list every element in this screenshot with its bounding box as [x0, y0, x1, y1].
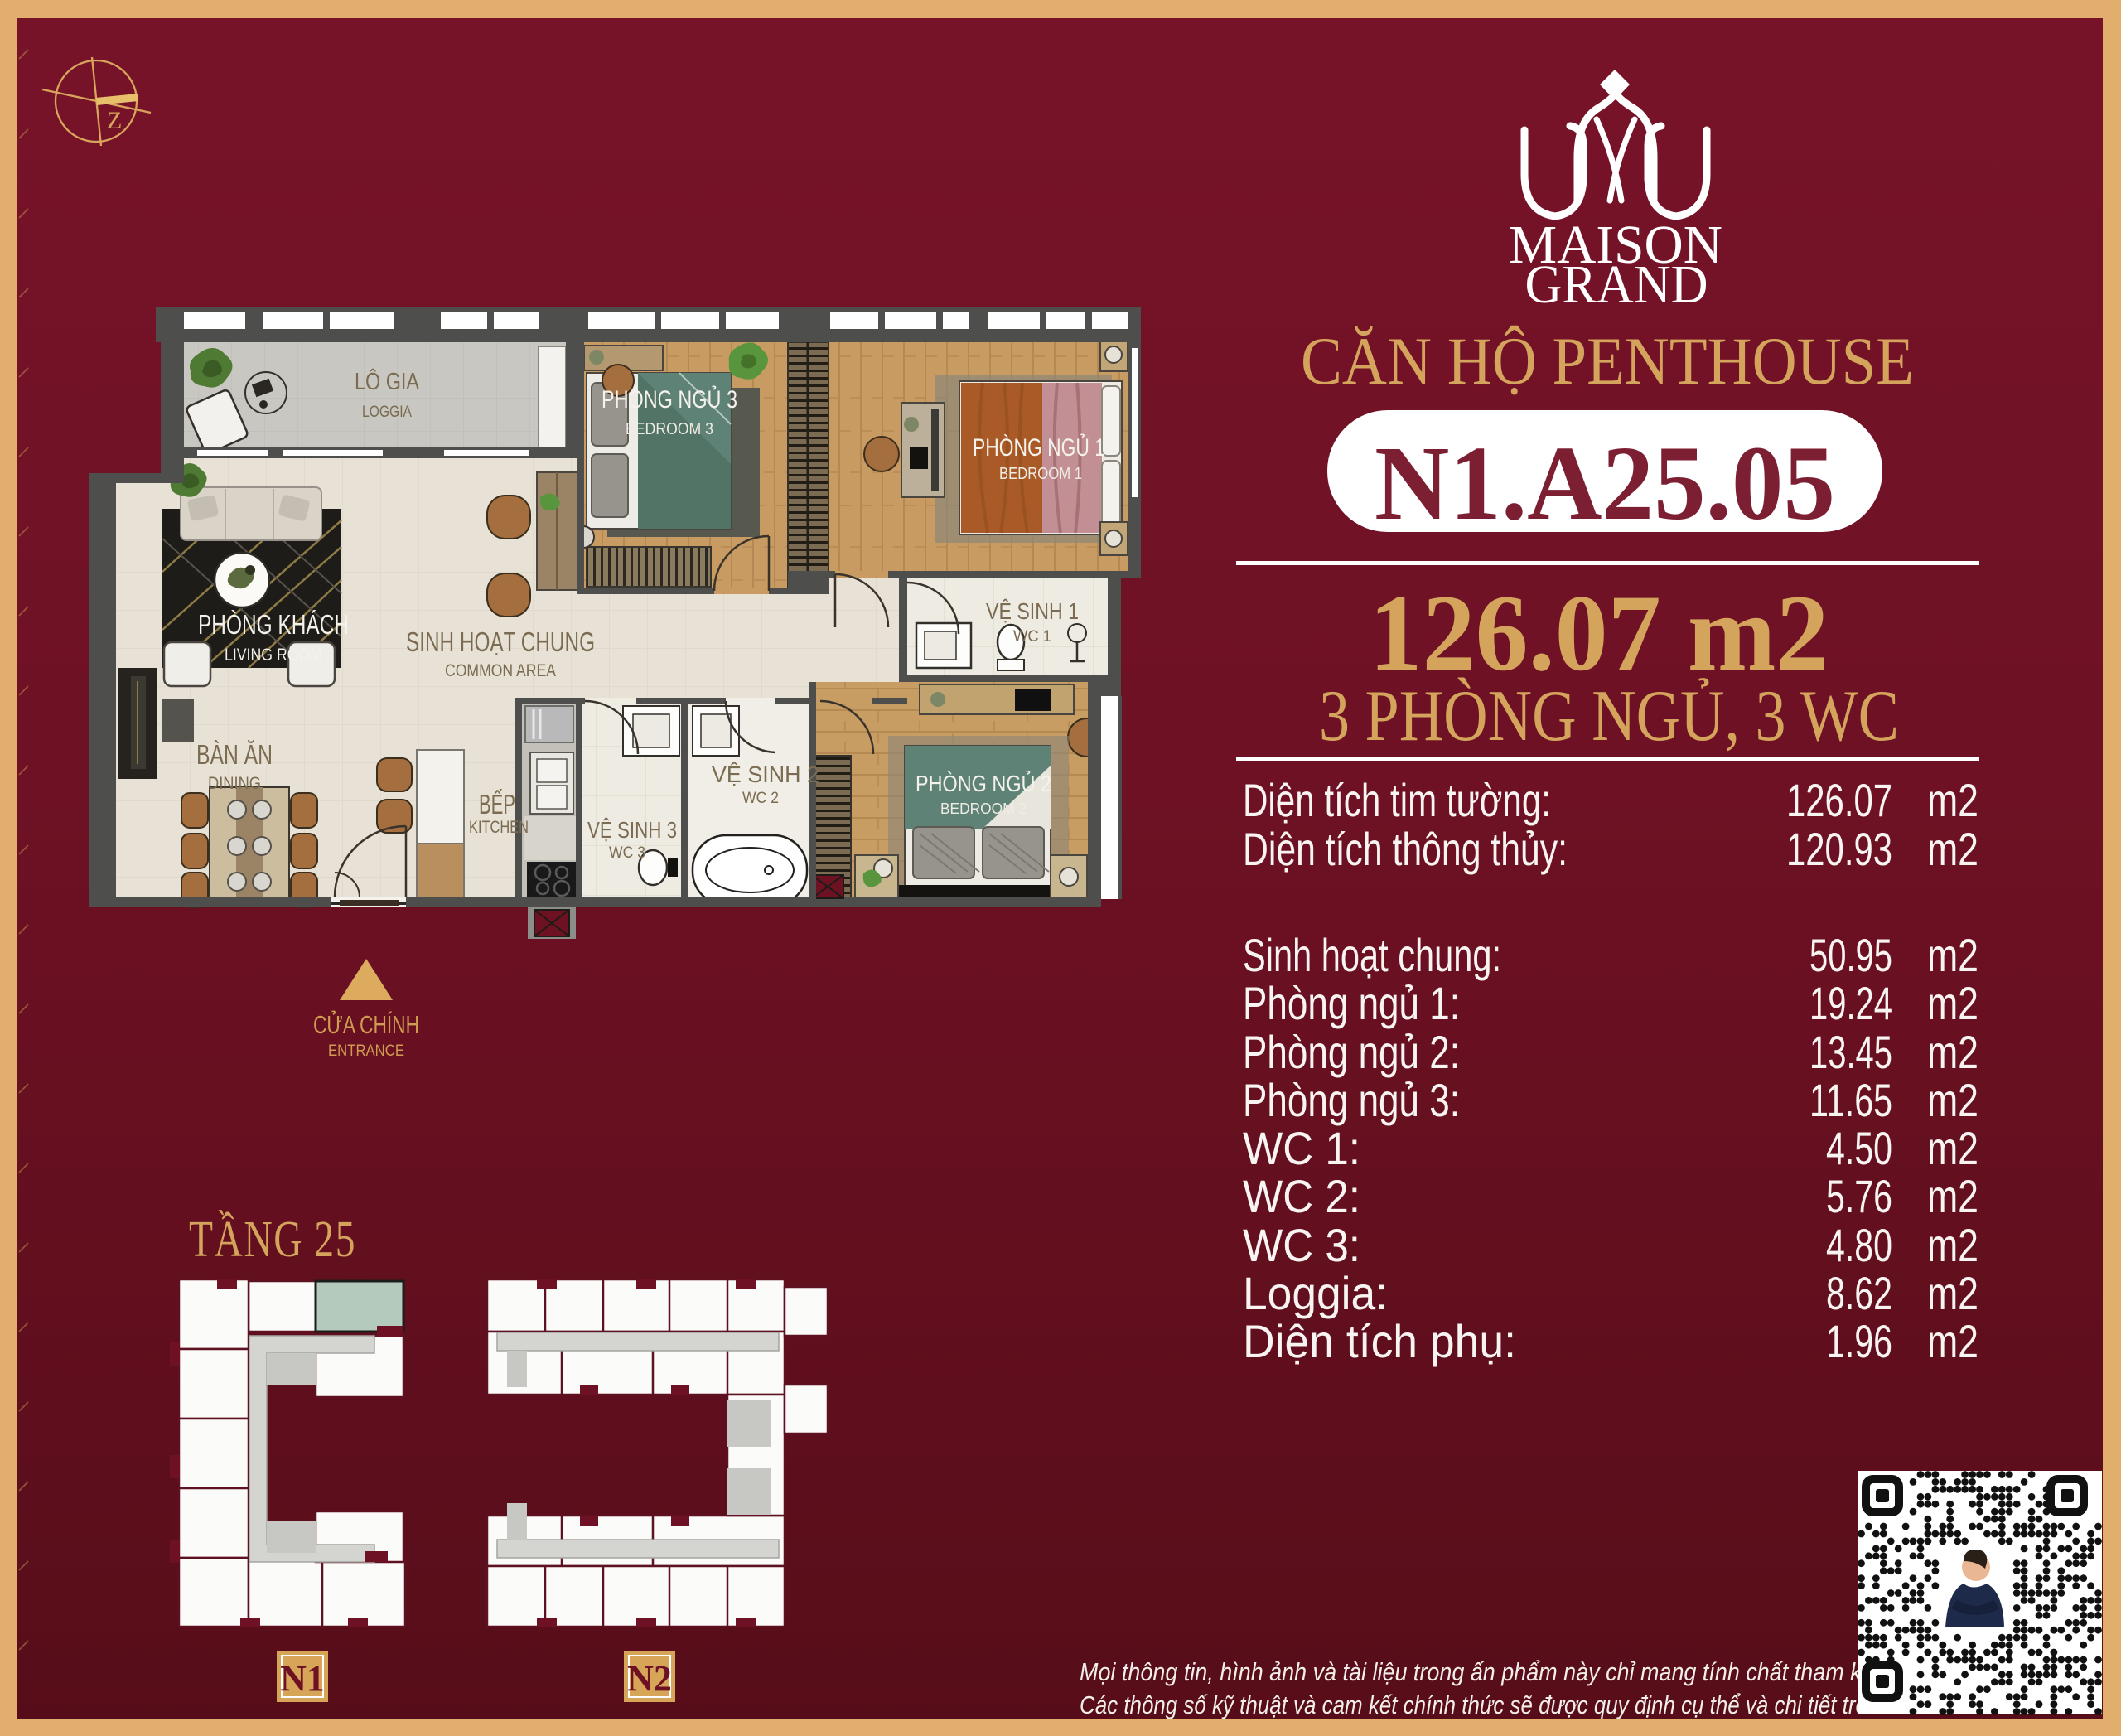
- svg-text:3 PHÒNG NGỦ, 3 WC: 3 PHÒNG NGỦ, 3 WC: [1319, 676, 1899, 757]
- svg-text:WC 2:: WC 2:: [1243, 1170, 1360, 1222]
- svg-text:PHÒNG NGỦ 2: PHÒNG NGỦ 2: [916, 770, 1051, 796]
- svg-text:m2: m2: [1927, 1074, 1978, 1126]
- svg-text:m2: m2: [1927, 1219, 1978, 1271]
- svg-text:m2: m2: [1927, 774, 1978, 826]
- svg-text:LOGGIA: LOGGIA: [362, 404, 412, 421]
- svg-text:m2: m2: [1927, 1122, 1978, 1174]
- svg-text:13.45: 13.45: [1809, 1026, 1892, 1078]
- svg-text:m2: m2: [1927, 1170, 1978, 1222]
- svg-text:DINING: DINING: [208, 774, 261, 793]
- svg-text:CĂN HỘ PENTHOUSE: CĂN HỘ PENTHOUSE: [1301, 323, 1914, 399]
- svg-text:PHÒNG NGỦ 3: PHÒNG NGỦ 3: [602, 385, 737, 413]
- svg-text:Diện tích phụ:: Diện tích phụ:: [1243, 1315, 1516, 1367]
- svg-text:LIVING ROOM: LIVING ROOM: [225, 646, 322, 665]
- svg-text:m2: m2: [1927, 1267, 1978, 1319]
- svg-text:Phòng ngủ 2:: Phòng ngủ 2:: [1243, 1026, 1460, 1078]
- svg-text:11.65: 11.65: [1809, 1074, 1892, 1126]
- svg-text:m2: m2: [1927, 1026, 1978, 1078]
- svg-text:COMMON AREA: COMMON AREA: [445, 661, 556, 680]
- svg-text:TẦNG 25: TẦNG 25: [189, 1211, 356, 1268]
- svg-text:VỆ SINH 3: VỆ SINH 3: [587, 817, 677, 843]
- svg-text:19.24: 19.24: [1809, 977, 1892, 1029]
- svg-text:N1: N1: [280, 1658, 325, 1699]
- svg-text:Diện tích thông thủy:: Diện tích thông thủy:: [1243, 823, 1568, 875]
- svg-text:SINH HOẠT CHUNG: SINH HOẠT CHUNG: [406, 626, 595, 657]
- svg-text:Diện tích tim tường:: Diện tích tim tường:: [1243, 774, 1551, 826]
- svg-text:N1.A25.05: N1.A25.05: [1375, 424, 1835, 542]
- svg-text:VỆ SINH 2: VỆ SINH 2: [712, 762, 819, 787]
- svg-text:CỬA CHÍNH: CỬA CHÍNH: [313, 1009, 419, 1039]
- svg-text:m2: m2: [1927, 977, 1978, 1029]
- svg-text:BEDROOM 3: BEDROOM 3: [626, 420, 713, 438]
- svg-text:m2: m2: [1927, 823, 1978, 875]
- svg-text:BEDROOM 2: BEDROOM 2: [940, 800, 1027, 817]
- svg-text:120.93: 120.93: [1786, 823, 1892, 875]
- svg-text:PHÒNG NGỦ 1: PHÒNG NGỦ 1: [973, 433, 1105, 462]
- svg-text:LÔ GIA: LÔ GIA: [355, 367, 420, 395]
- svg-text:WC 1:: WC 1:: [1243, 1122, 1360, 1174]
- svg-text:GRAND: GRAND: [1525, 254, 1708, 315]
- svg-text:BÀN ĂN: BÀN ĂN: [196, 739, 273, 770]
- svg-text:126.07 m2: 126.07 m2: [1370, 572, 1829, 694]
- svg-text:WC 3: WC 3: [609, 844, 645, 862]
- svg-text:126.07: 126.07: [1786, 774, 1892, 826]
- svg-text:50.95: 50.95: [1809, 929, 1892, 981]
- svg-text:Loggia:: Loggia:: [1243, 1267, 1388, 1319]
- svg-text:ENTRANCE: ENTRANCE: [328, 1042, 404, 1060]
- svg-text:WC 1: WC 1: [1013, 628, 1051, 646]
- svg-text:KITCHEN: KITCHEN: [469, 818, 529, 837]
- svg-text:N2: N2: [627, 1658, 672, 1699]
- svg-text:5.76: 5.76: [1826, 1170, 1892, 1222]
- svg-text:WC 2: WC 2: [742, 790, 779, 807]
- svg-text:BEDROOM 1: BEDROOM 1: [999, 465, 1082, 483]
- svg-text:1.96: 1.96: [1826, 1315, 1892, 1367]
- svg-text:VỆ SINH 1: VỆ SINH 1: [986, 598, 1079, 624]
- svg-text:Sinh hoạt chung:: Sinh hoạt chung:: [1243, 929, 1501, 981]
- svg-text:4.50: 4.50: [1826, 1122, 1892, 1174]
- svg-text:4.80: 4.80: [1826, 1219, 1892, 1271]
- svg-text:Phòng ngủ 1:: Phòng ngủ 1:: [1243, 977, 1460, 1029]
- svg-text:m2: m2: [1927, 929, 1978, 981]
- svg-text:Phòng ngủ 3:: Phòng ngủ 3:: [1243, 1074, 1460, 1126]
- svg-text:PHÒNG KHÁCH: PHÒNG KHÁCH: [198, 609, 349, 640]
- svg-text:BẾP: BẾP: [479, 789, 515, 820]
- svg-text:Z: Z: [107, 107, 122, 134]
- svg-text:m2: m2: [1927, 1315, 1978, 1367]
- svg-text:WC 3:: WC 3:: [1243, 1219, 1360, 1271]
- svg-text:8.62: 8.62: [1826, 1267, 1892, 1319]
